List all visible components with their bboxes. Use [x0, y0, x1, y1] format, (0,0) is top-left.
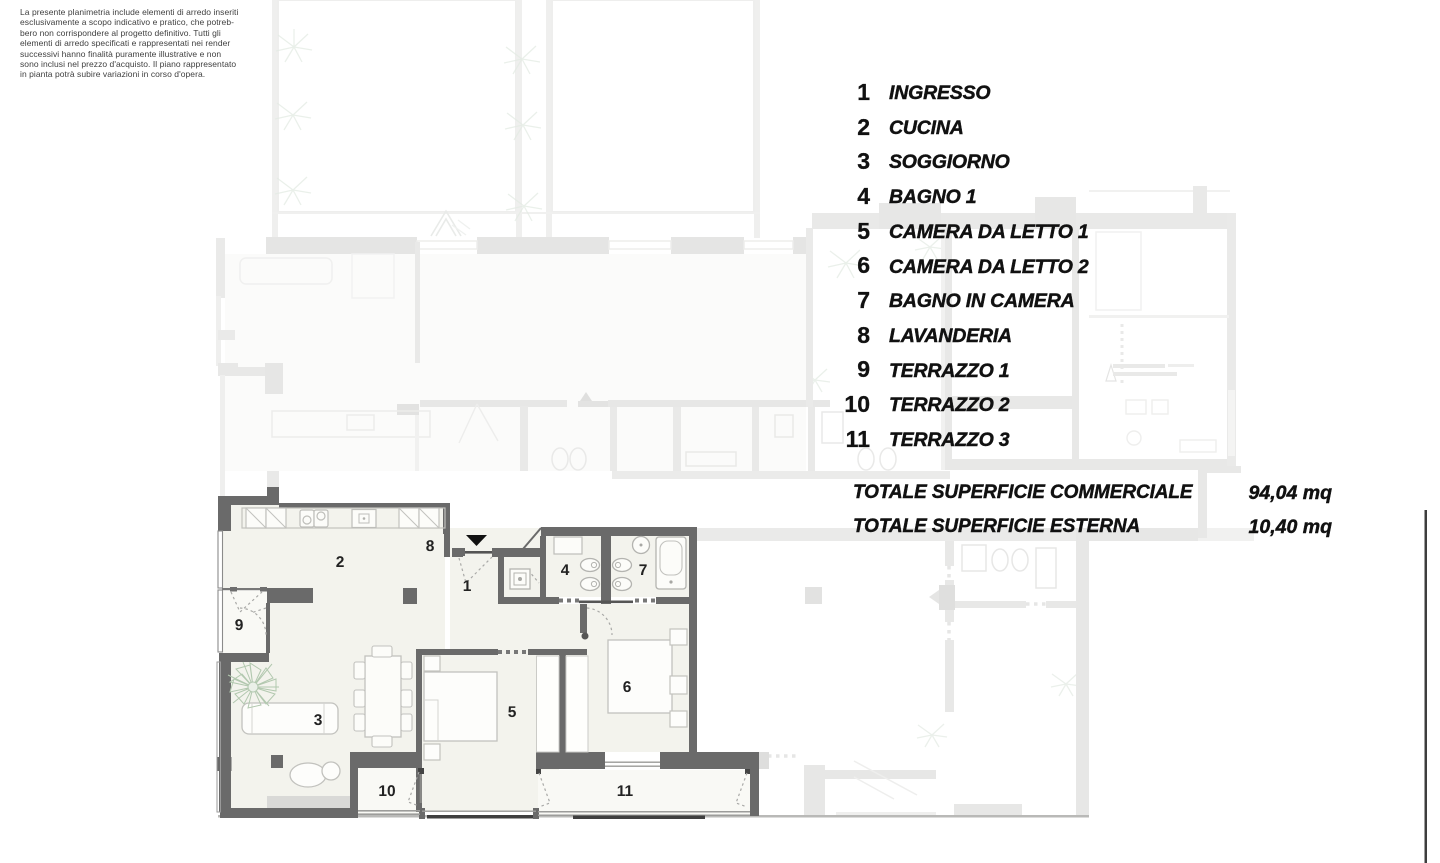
svg-text:1: 1 [463, 578, 472, 595]
svg-text:5: 5 [508, 704, 517, 721]
svg-text:2: 2 [336, 554, 345, 571]
svg-text:6: 6 [623, 679, 632, 696]
svg-text:10: 10 [378, 783, 395, 800]
svg-text:11: 11 [617, 783, 634, 800]
svg-text:9: 9 [235, 617, 244, 634]
svg-text:4: 4 [561, 562, 570, 579]
svg-text:8: 8 [426, 538, 435, 555]
svg-text:3: 3 [314, 712, 323, 729]
svg-text:7: 7 [639, 562, 648, 579]
